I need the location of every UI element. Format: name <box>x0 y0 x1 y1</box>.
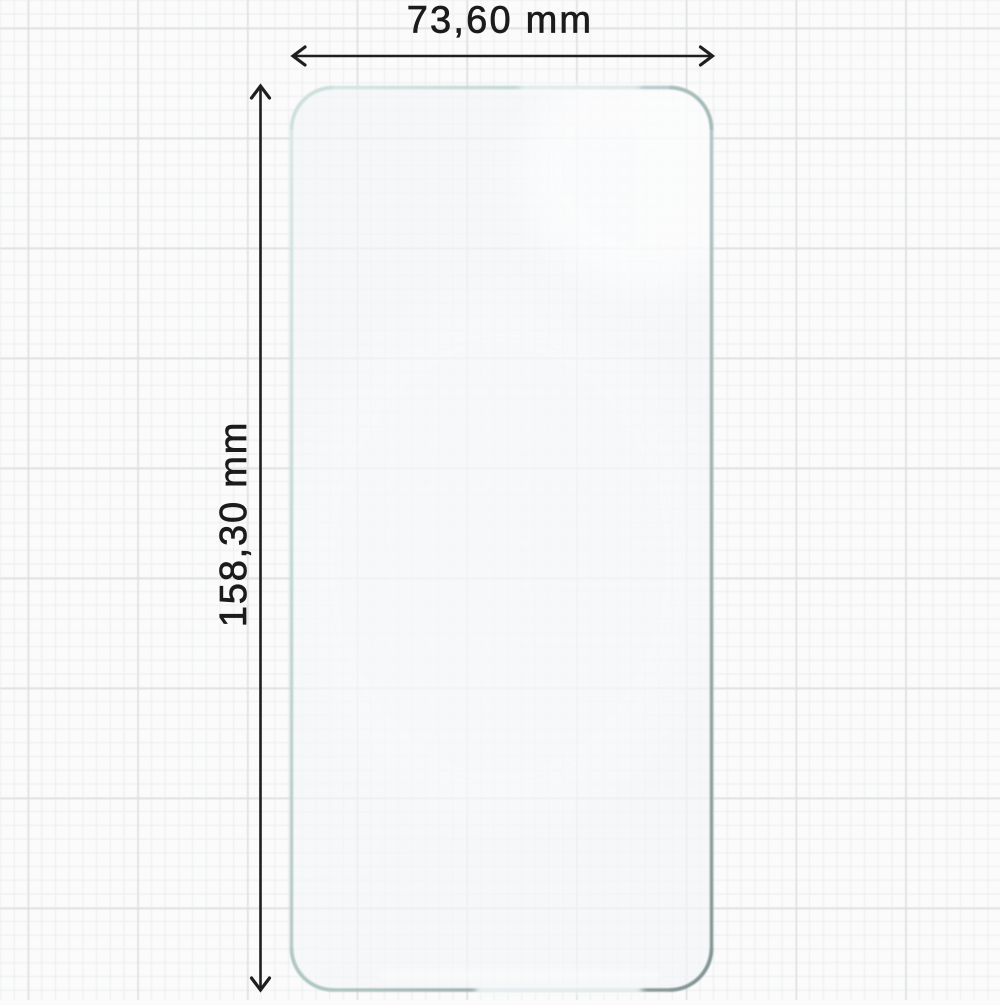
svg-text:73,60 mm: 73,60 mm <box>407 0 594 42</box>
svg-text:158,30 mm: 158,30 mm <box>213 421 255 627</box>
